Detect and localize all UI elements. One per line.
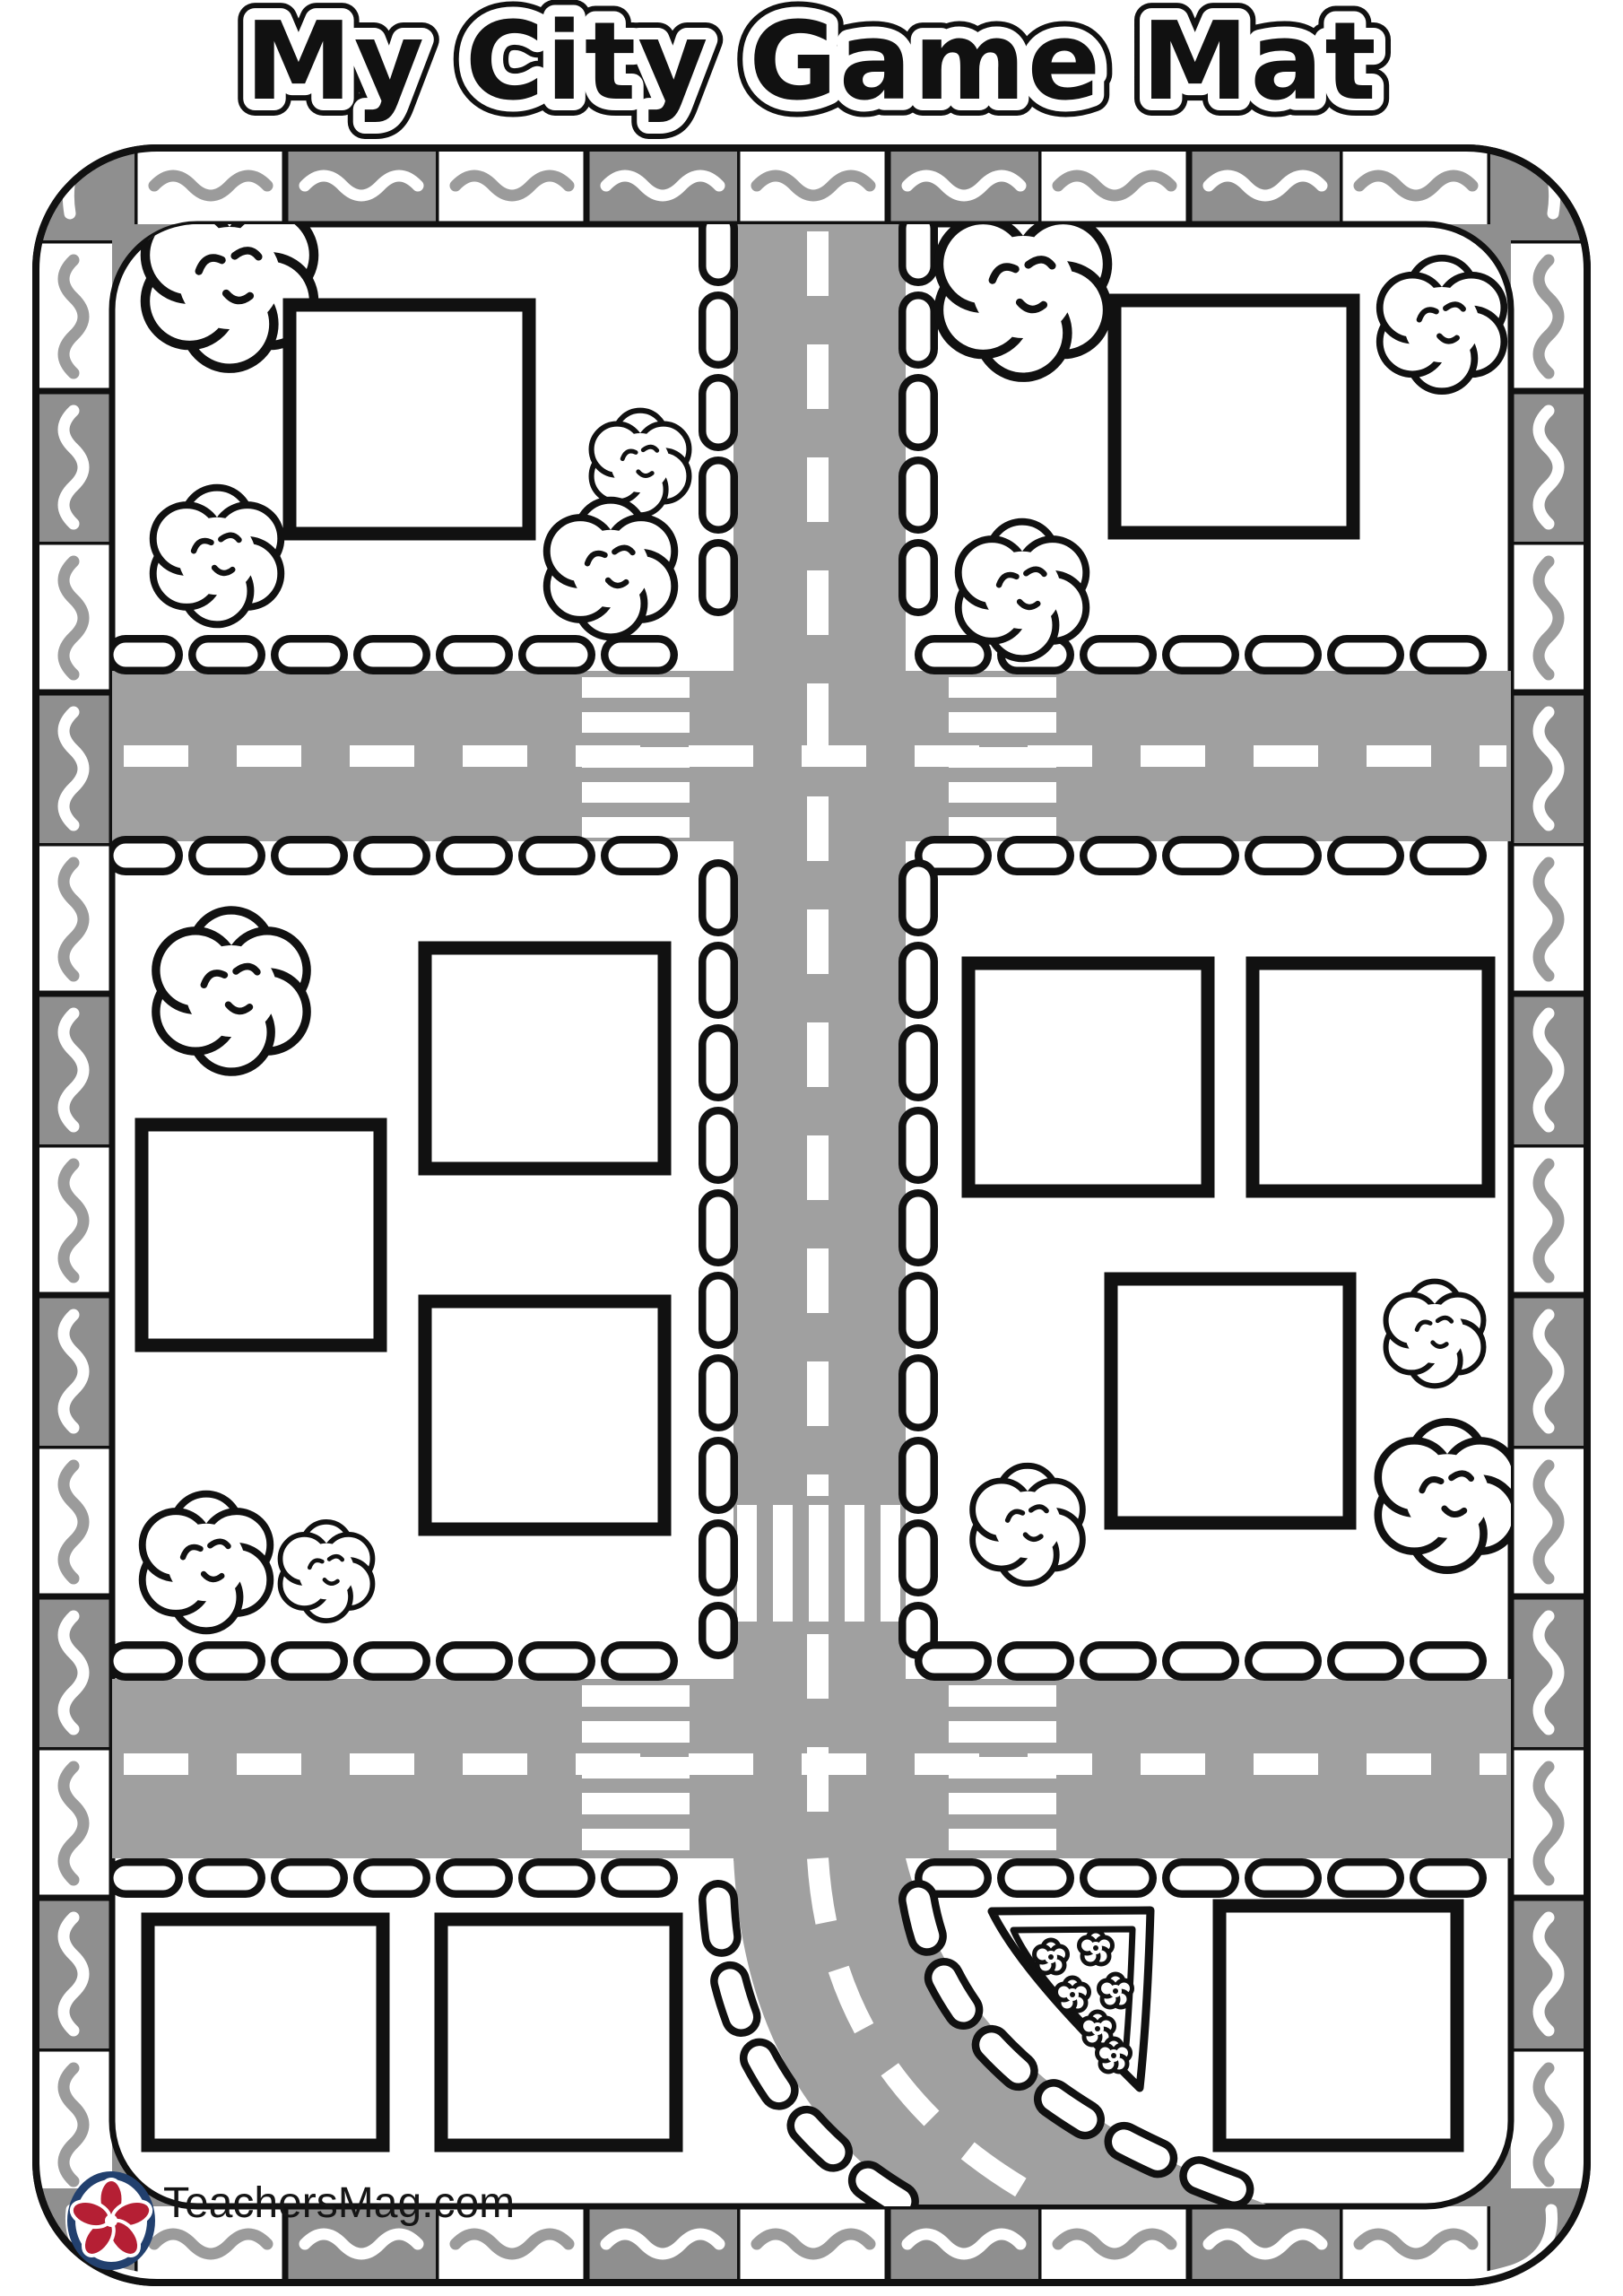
bush-icon (143, 1494, 271, 1631)
flower-icon (1099, 1974, 1133, 2007)
building-slot (1111, 1279, 1350, 1523)
bush-icon (1380, 258, 1505, 391)
bush-icon (281, 1522, 373, 1621)
page-title: My City Game Mat My City Game Mat My Cit… (245, 0, 1377, 125)
bush-icon (1378, 1422, 1516, 1570)
building-slot (425, 1301, 664, 1529)
flower-icon (1056, 1978, 1089, 2011)
teachersmag-flower-icon (67, 2171, 155, 2270)
building-slot (441, 1919, 676, 2145)
bush-icon (156, 910, 307, 1072)
bush-icon (547, 500, 675, 638)
border-tiles-top (135, 148, 1490, 224)
building-slot (1219, 1906, 1457, 2145)
flower-icon (1080, 1931, 1113, 1964)
building-slot (290, 305, 529, 534)
flower-icon (1098, 2039, 1131, 2072)
city-mat-scene: My City Game Mat My City Game Mat My Cit… (0, 0, 1623, 2296)
building-slot (425, 948, 664, 1169)
bush-icon (959, 522, 1087, 659)
bush-icon (973, 1465, 1083, 1583)
building-slot (148, 1919, 383, 2145)
bush-icon (153, 488, 282, 625)
footer-logo-text: TeachersMag.com (163, 2179, 515, 2227)
building-slot (142, 1125, 380, 1345)
svg-text:My City Game Mat: My City Game Mat (245, 0, 1377, 125)
border-tiles-left (36, 240, 112, 2188)
building-slot (968, 963, 1208, 1191)
flower-icon (1035, 1940, 1068, 1973)
building-slot (1253, 963, 1488, 1191)
bush-icon (1386, 1282, 1484, 1387)
building-slot (1115, 300, 1353, 533)
game-mat-page: My City Game Mat My City Game Mat My Cit… (0, 0, 1623, 2296)
border-tiles-right (1511, 240, 1587, 2188)
